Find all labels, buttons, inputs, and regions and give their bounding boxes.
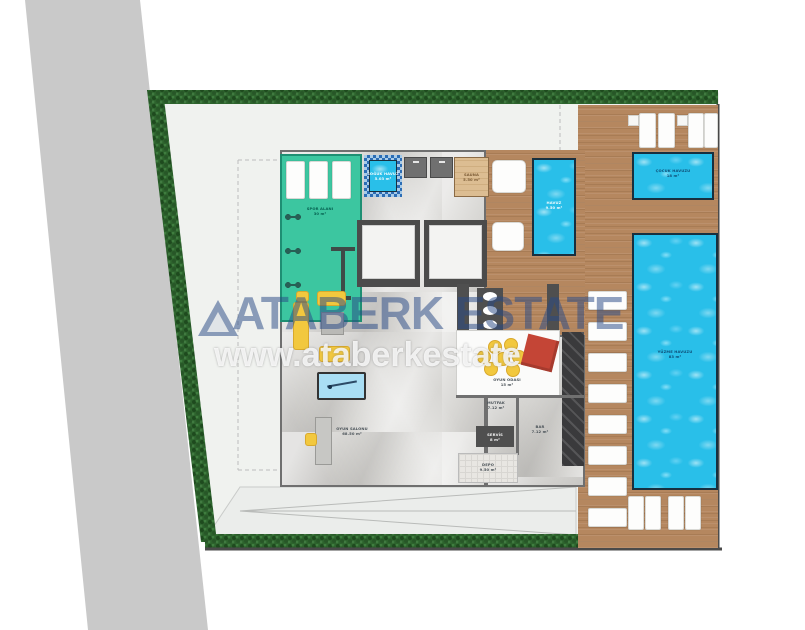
deck-side-table xyxy=(628,115,639,126)
sauna-room: SAUNA 5.50 m² xyxy=(454,157,489,197)
sun-lounger xyxy=(588,353,627,372)
house-logo-icon xyxy=(198,300,238,336)
plunge-pool: HAVUZ 9.50 m² xyxy=(532,158,576,256)
marble-wall xyxy=(562,332,584,466)
sun-lounger xyxy=(492,160,526,193)
billiard-ball-icon xyxy=(328,385,332,389)
cold-pool: SOĞUK HAVUZ 5.03 m² xyxy=(364,155,402,197)
plunge-pool-area: 9.50 m² xyxy=(546,206,563,211)
sun-lounger xyxy=(492,222,524,251)
plunge-pool-label: HAVUZ xyxy=(547,201,562,206)
kids-pool-label: ÇOCUK HAVUZU xyxy=(656,169,691,174)
deck-side-table xyxy=(677,115,688,126)
main-pool: YÜZME HAVUZU 83 m² xyxy=(632,233,718,490)
main-pool-label: YÜZME HAVUZU xyxy=(658,350,693,355)
sun-lounger xyxy=(685,496,701,530)
lounge-area: 15 m² xyxy=(501,383,514,388)
watermark-brand: ATABERK ESTATE xyxy=(232,290,623,336)
sun-lounger xyxy=(588,415,627,434)
storage-room xyxy=(458,453,518,483)
gym-lounger xyxy=(309,161,328,199)
watermark: ATABERK ESTATE xyxy=(198,290,623,336)
sauna-label: SAUNA xyxy=(464,173,479,178)
kids-pool-area: 18 m² xyxy=(667,174,680,179)
exercise-bike-icon xyxy=(284,246,302,255)
shower-cabin xyxy=(430,157,453,178)
hedge-top xyxy=(150,90,718,104)
sun-lounger xyxy=(645,496,661,530)
exercise-bike-icon xyxy=(284,212,302,221)
sun-lounger xyxy=(688,113,704,148)
sun-lounger xyxy=(628,496,644,530)
elevator-shaft xyxy=(424,220,487,287)
sun-lounger xyxy=(588,508,627,527)
sun-lounger xyxy=(668,496,684,530)
shower-cabin xyxy=(404,157,427,178)
sun-lounger xyxy=(639,113,656,148)
kitchen-counter xyxy=(476,426,514,447)
billiards-table xyxy=(317,372,366,400)
lounge-label: OYUN ODASI xyxy=(493,378,521,383)
sun-lounger xyxy=(658,113,675,148)
sun-lounger xyxy=(588,446,627,465)
elevator-shaft xyxy=(357,220,420,287)
main-pool-area: 83 m² xyxy=(669,355,682,360)
sun-lounger xyxy=(588,384,627,403)
interior-wall xyxy=(516,397,519,455)
console-table xyxy=(315,417,332,465)
chair xyxy=(305,433,317,446)
kids-pool: ÇOCUK HAVUZU 18 m² xyxy=(632,152,714,200)
gym-lounger xyxy=(286,161,305,199)
site-plan: ÇOCUK HAVUZU 18 m² YÜZME HAVUZU 83 m² HA… xyxy=(0,0,805,630)
sauna-area: 5.50 m² xyxy=(463,178,480,183)
cold-pool-water xyxy=(369,160,397,192)
sun-lounger xyxy=(588,477,627,496)
interior-wall xyxy=(456,395,585,398)
floor-mat xyxy=(521,334,560,373)
gym-lounger xyxy=(332,161,351,199)
sun-lounger xyxy=(704,113,718,148)
watermark-url: www.ataberkestate xyxy=(214,338,521,372)
